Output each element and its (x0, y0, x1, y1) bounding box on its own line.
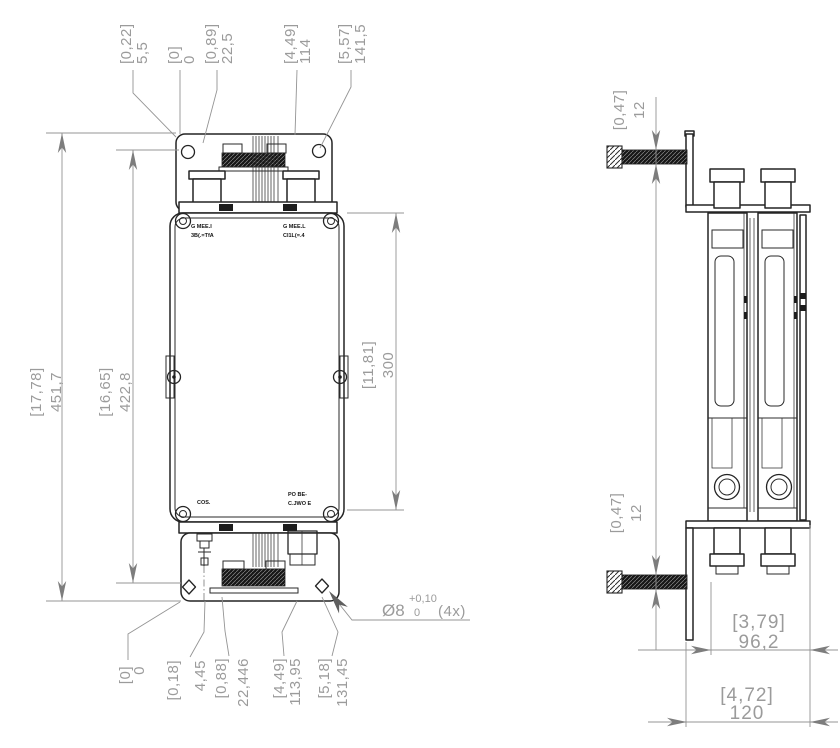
side-top-connector-left-cap (710, 169, 744, 182)
top-connector-left-body (193, 179, 221, 204)
hole-callout-qty: (4x) (438, 603, 466, 620)
dimension-text: [0,22] 5,5 [0] 0 [0,89] 22,5 [4,49] 114 … (28, 23, 786, 724)
dim-bottom-4-inch: [4,49] (271, 658, 288, 699)
dim-top-1-mm: 5,5 (134, 42, 151, 64)
side-top-connector-right-cap (761, 169, 795, 182)
dim-body-mm: 300 (380, 352, 397, 379)
side-bottom-bracket-leg (686, 521, 810, 528)
top-connector-right-cap (283, 171, 319, 179)
front-bottom-bracket-plate (181, 533, 339, 601)
dim-top-2-mm: 0 (181, 55, 198, 64)
rear-plate-clip (800, 305, 806, 311)
dim-top-4-mm: 114 (297, 39, 314, 64)
dim-width-1-inch: [3,79] (732, 612, 786, 633)
dim-height-1-mm: 451,7 (48, 372, 65, 412)
dim-bottom-2-mm: 4,45 (192, 660, 209, 691)
rear-plate-clip (800, 293, 806, 299)
marking-text: G MEE.L (283, 224, 306, 230)
side-view (607, 131, 810, 640)
top-connector-right-body (287, 179, 315, 204)
hole-callout-tol-minus: 0 (414, 607, 420, 619)
side-top-connector-right-body (765, 182, 791, 208)
side-bottom-connector-right-cap (761, 554, 795, 566)
side-bottom-connector-right-ring (767, 566, 789, 574)
top-connector-left-cap (189, 171, 225, 179)
marking-text: C.JWO E (288, 501, 312, 507)
side-rear-plate (800, 215, 806, 520)
dim-top-5-mm: 141,5 (352, 24, 369, 64)
side-bottom-connector-right-body (765, 528, 791, 554)
front-view: G MEE.I 3B(.=TfA G MEE.L CI1L(=.4 COS. P… (166, 134, 348, 601)
top-screw-head (607, 146, 622, 168)
dim-bottom-5-inch: [5,18] (316, 658, 333, 699)
top-screw-thread (622, 150, 687, 164)
rail-clip (283, 204, 297, 211)
dim-bottom-3-inch: [0,88] (213, 658, 230, 699)
dim-bottom-4-mm: 113,95 (287, 658, 304, 706)
marking-text: CI1L(=.4 (283, 233, 305, 239)
dim-height-2-mm: 422,8 (117, 372, 134, 412)
side-bottom-connector-left-cap (710, 554, 744, 566)
marking-text: COS. (197, 500, 211, 506)
dim-width-1-mm: 96,2 (739, 632, 780, 653)
side-top-connector-left-body (714, 182, 740, 208)
dim-top-3-inch: [0,89] (203, 23, 220, 64)
dim-top-1-inch: [0,22] (118, 23, 135, 64)
rail-clip (283, 524, 297, 531)
dim-height-1-inch: [17,78] (28, 367, 45, 416)
dim-screw-bottom-mm: 12 (628, 504, 645, 522)
marking-text: PO BE- (288, 492, 307, 498)
side-bottom-connector-left-ring (716, 566, 738, 574)
dim-height-2-inch: [16,65] (97, 367, 114, 416)
bottom-screw-thread (622, 575, 687, 589)
marking-text: G MEE.I (191, 224, 212, 230)
dim-bottom-2-inch: [0,18] (165, 660, 182, 701)
marking-text: 3B(.=TfA (191, 233, 214, 239)
dim-bottom-3-mm: 22,446 (235, 658, 252, 707)
dim-width-2-mm: 120 (730, 703, 765, 724)
dim-top-5-inch: [5,57] (336, 23, 353, 64)
side-unit-left (708, 213, 747, 521)
bottom-screw-head (607, 571, 622, 593)
cad-drawing: G MEE.I 3B(.=TfA G MEE.L CI1L(=.4 COS. P… (0, 0, 840, 748)
rail-clip (219, 204, 233, 211)
hole-callout-diameter: Ø8 (382, 601, 405, 620)
side-unit-right (758, 213, 797, 521)
hole-callout-tol-plus: +0,10 (409, 593, 437, 605)
dsub-connector-bottom (222, 569, 285, 586)
top-mounting-rail (179, 202, 337, 213)
dim-body-inch: [11,81] (360, 341, 377, 389)
dim-screw-bottom-inch: [0,47] (608, 493, 625, 534)
technical-drawing-page: G MEE.I 3B(.=TfA G MEE.L CI1L(=.4 COS. P… (0, 0, 840, 748)
dim-bottom-5-mm: 131,45 (334, 658, 351, 707)
dsub-connector-top (222, 153, 285, 167)
dim-screw-top-mm: 12 (631, 101, 648, 119)
rail-clip (219, 524, 233, 531)
dim-screw-top-inch: [0,47] (611, 90, 628, 131)
dim-bottom-1-mm: 0 (131, 666, 148, 675)
dim-top-3-mm: 22,5 (219, 33, 236, 64)
main-body-outline (170, 213, 344, 522)
side-top-bracket-vertical (686, 134, 693, 207)
side-bottom-connector-left-body (714, 528, 740, 554)
